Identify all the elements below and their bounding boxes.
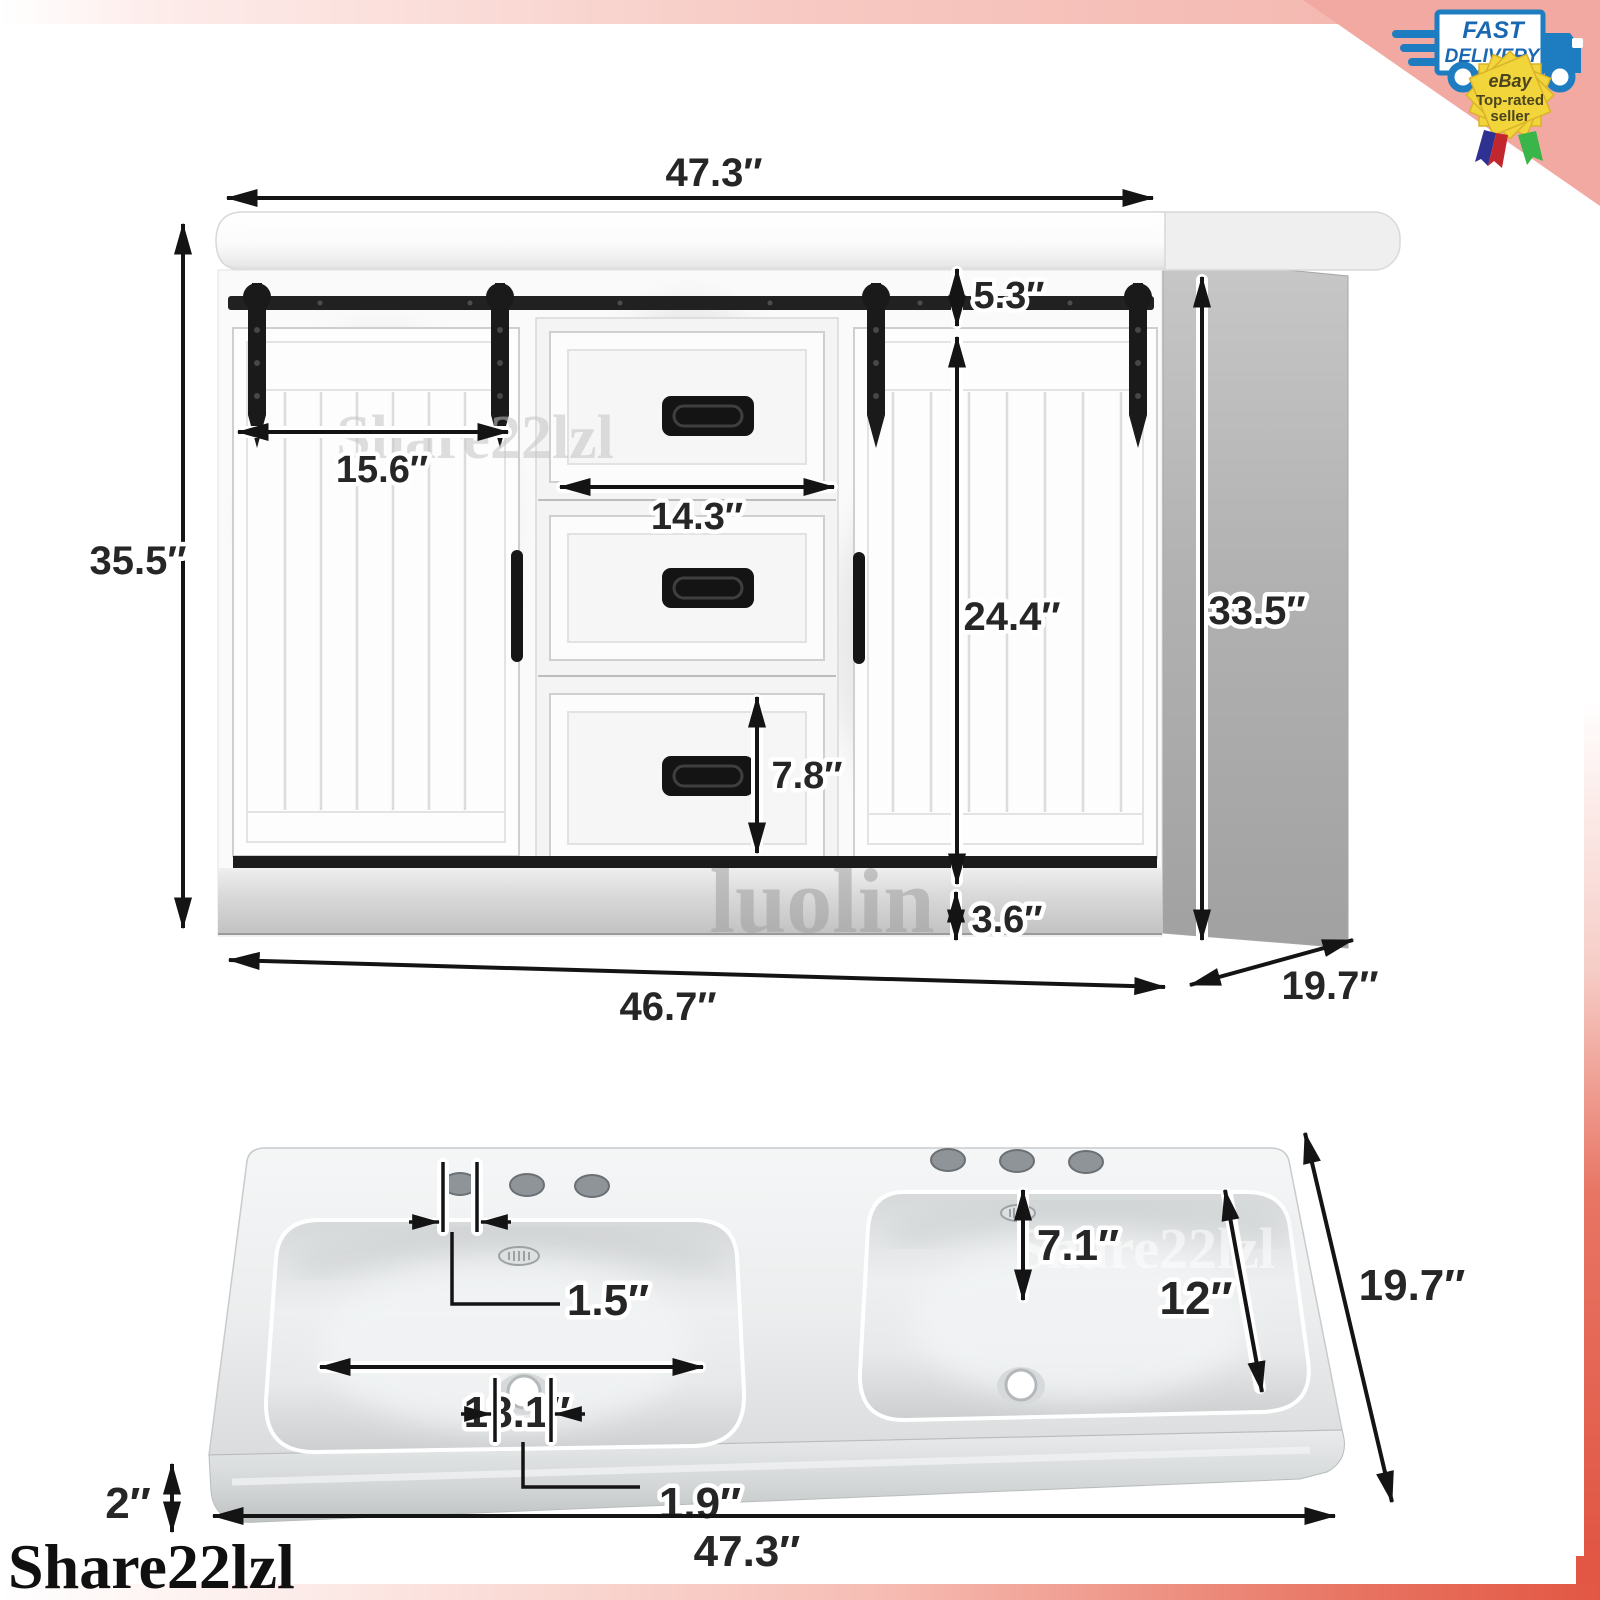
svg-text:7.1″: 7.1″ — [1037, 1221, 1119, 1270]
svg-text:3.6″: 3.6″ — [971, 899, 1042, 941]
svg-text:1.9″: 1.9″ — [659, 1479, 741, 1528]
vanity-cabinet — [216, 212, 1400, 948]
dim-edge-thickness: 2″ — [105, 1464, 172, 1532]
svg-text:24.4″: 24.4″ — [963, 595, 1060, 639]
svg-text:47.3″: 47.3″ — [665, 151, 762, 195]
countertop-side — [1130, 212, 1400, 270]
right-door-handle — [853, 552, 865, 664]
svg-text:46.7″: 46.7″ — [619, 985, 716, 1029]
fast-delivery-line1: FAST — [1462, 17, 1526, 44]
bottom-track — [233, 856, 1157, 868]
svg-text:19.7″: 19.7″ — [1359, 1261, 1466, 1310]
overflow-hole-icon — [499, 1247, 539, 1265]
ebay-badge-line1: eBay — [1488, 71, 1532, 91]
ebay-badge-line3: seller — [1490, 108, 1529, 125]
drawer-pull-icon — [662, 396, 754, 436]
right-barn-door — [853, 328, 1157, 858]
svg-text:14.3″: 14.3″ — [651, 496, 743, 538]
watermark-toekick: luolin — [709, 850, 934, 952]
svg-text:19.7″: 19.7″ — [1281, 964, 1378, 1008]
seller-logo: Share22lzl — [8, 1531, 295, 1600]
drawer-pull-icon — [662, 568, 754, 608]
svg-text:2″: 2″ — [105, 1479, 151, 1528]
svg-text:33.5″: 33.5″ — [1208, 589, 1305, 633]
dim-cabinet-depth: 19.7″ — [1190, 940, 1379, 1008]
svg-text:35.5″: 35.5″ — [89, 539, 186, 583]
dim-bottom-width: 46.7″ — [229, 960, 1165, 1029]
svg-text:7.8″: 7.8″ — [771, 755, 842, 797]
faucet-holes-left — [443, 1173, 609, 1197]
svg-text:15.6″: 15.6″ — [336, 449, 428, 491]
dim-overall-height: 35.5″ — [89, 224, 186, 928]
svg-text:12″: 12″ — [1159, 1272, 1232, 1324]
faucet-holes-right — [931, 1149, 1103, 1173]
svg-text:5.3″: 5.3″ — [973, 275, 1044, 317]
dim-sink-width: 47.3″ — [213, 1516, 1335, 1576]
drain-right — [997, 1367, 1045, 1405]
frame-right-strip — [1584, 700, 1600, 1600]
ebay-badge-line2: Top-rated — [1476, 92, 1544, 109]
left-door-handle — [511, 550, 523, 662]
svg-text:47.3″: 47.3″ — [694, 1527, 801, 1576]
product-image: Share22lzl luolin Share22lzl 47.3″ 35.5″… — [0, 0, 1600, 1600]
dim-top-width: 47.3″ — [227, 151, 1153, 198]
svg-text:1.5″: 1.5″ — [567, 1276, 649, 1325]
drawer-pull-icon — [662, 756, 754, 796]
double-sink-top — [209, 1148, 1344, 1522]
